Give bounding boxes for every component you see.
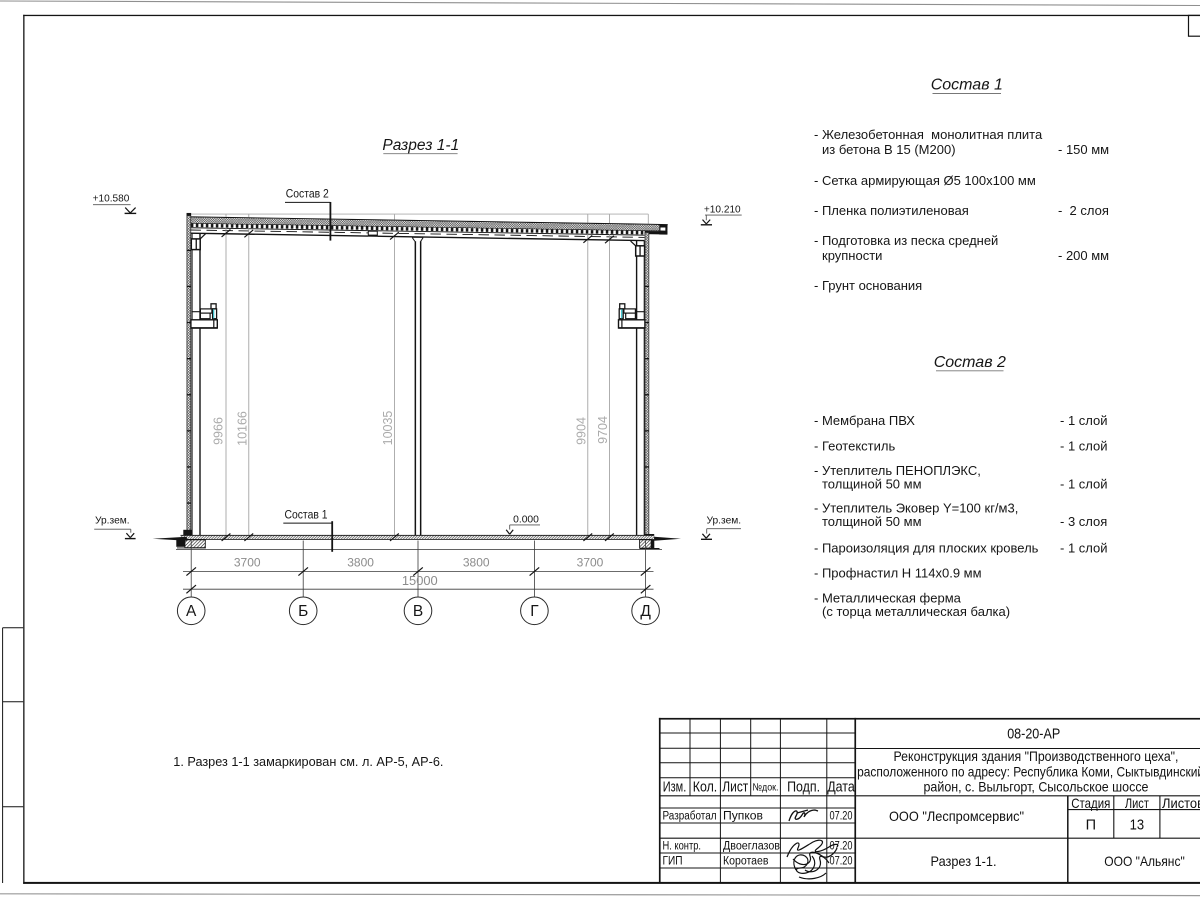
svg-text:ООО "Леспромсервис": ООО "Леспромсервис" <box>889 808 1024 824</box>
svg-text:- Профнастил Н 114х0.9 мм: - Профнастил Н 114х0.9 мм <box>814 566 982 581</box>
svg-text:- 1 слой: - 1 слой <box>1060 413 1108 428</box>
svg-text:08-20-АР: 08-20-АР <box>1007 725 1060 742</box>
svg-text:0.000: 0.000 <box>513 514 539 525</box>
svg-text:- Грунт основания: - Грунт основания <box>814 278 922 293</box>
svg-text:Лист: Лист <box>1125 795 1149 811</box>
svg-text:Подп.: Подп. <box>787 780 820 796</box>
svg-text:Кол.: Кол. <box>693 780 718 796</box>
svg-text:1. Разрез 1-1 замаркирован см.: 1. Разрез 1-1 замаркирован см. л. АР-5, … <box>173 755 443 769</box>
svg-text:Разрез 1-1.: Разрез 1-1. <box>931 853 997 869</box>
svg-text:9704: 9704 <box>596 416 610 444</box>
svg-text:Листов: Листов <box>1162 795 1200 811</box>
svg-text:- 150 мм: - 150 мм <box>1058 142 1109 157</box>
svg-text:- 1 слой: - 1 слой <box>1060 541 1108 556</box>
svg-text:Коротаев: Коротаев <box>723 856 769 868</box>
svg-text:ООО "Альянс": ООО "Альянс" <box>1104 853 1185 869</box>
svg-text:- 1 слой: - 1 слой <box>1060 477 1108 492</box>
svg-text:- Железобетонная монолитная п: - Железобетонная монолитная плита <box>814 127 1043 142</box>
svg-text:Состав 2: Состав 2 <box>934 354 1006 371</box>
svg-text:Д: Д <box>640 603 651 620</box>
svg-text:В: В <box>413 603 423 620</box>
svg-text:- Сетка армирующая Ø5 100х100: - Сетка армирующая Ø5 100х100 мм <box>814 173 1036 188</box>
svg-text:толщиной 50 мм: толщиной 50 мм <box>822 514 922 529</box>
svg-text:- Пароизоляция для плоских кро: - Пароизоляция для плоских кровель <box>814 541 1039 556</box>
svg-text:ГИП: ГИП <box>663 856 683 868</box>
svg-text:- 200 мм: - 200 мм <box>1058 248 1109 263</box>
svg-text:+10.580: +10.580 <box>93 194 130 205</box>
svg-text:Н. контр.: Н. контр. <box>663 841 702 853</box>
svg-text:07.20: 07.20 <box>830 811 853 823</box>
svg-text:Ур.зем.: Ур.зем. <box>707 516 742 527</box>
svg-text:Разрез 1-1: Разрез 1-1 <box>382 137 459 154</box>
svg-text:Состав 1: Состав 1 <box>931 77 1003 94</box>
svg-text:Дата: Дата <box>827 780 855 796</box>
svg-text:- Мембрана ПВХ: - Мембрана ПВХ <box>814 413 915 428</box>
svg-text:3700: 3700 <box>577 556 604 570</box>
svg-text:- 3 слоя: - 3 слоя <box>1060 514 1107 529</box>
svg-text:3700: 3700 <box>234 556 261 570</box>
svg-text:Лист: Лист <box>722 780 748 796</box>
svg-text:- Пленка полиэтиленовая: - Пленка полиэтиленовая <box>814 203 969 218</box>
svg-text:- 1 слой: - 1 слой <box>1060 439 1108 454</box>
svg-text:П: П <box>1086 818 1096 834</box>
svg-text:Б: Б <box>298 603 308 620</box>
svg-text:Реконструкция здания "Производ: Реконструкция здания "Производственного … <box>894 749 1179 764</box>
svg-text:расположенного по адресу: Респ: расположенного по адресу: Республика Ком… <box>857 765 1200 780</box>
svg-text:- Геотекстиль: - Геотекстиль <box>814 439 895 454</box>
svg-text:Состав 1: Состав 1 <box>285 508 328 522</box>
svg-text:Разработал: Разработал <box>663 811 717 823</box>
svg-text:+10.210: +10.210 <box>704 204 741 215</box>
svg-text:крупности: крупности <box>822 248 882 263</box>
svg-text:3800: 3800 <box>347 556 374 570</box>
svg-text:07.20: 07.20 <box>830 856 853 868</box>
svg-text:Г: Г <box>530 603 539 620</box>
svg-text:15000: 15000 <box>402 573 438 588</box>
svg-text:Пупков: Пупков <box>723 811 763 823</box>
svg-text:13: 13 <box>1130 818 1145 834</box>
svg-text:07.20: 07.20 <box>830 841 853 853</box>
svg-text:- 2 слоя: - 2 слоя <box>1058 203 1109 218</box>
svg-text:район, с. Выльгорт, Сысольское: район, с. Выльгорт, Сысольское шоссе <box>924 780 1149 795</box>
svg-text:Изм.: Изм. <box>663 780 687 796</box>
svg-text:10035: 10035 <box>381 411 395 446</box>
svg-text:9904: 9904 <box>574 417 588 445</box>
svg-text:Ур.зем.: Ур.зем. <box>95 516 130 527</box>
svg-text:9966: 9966 <box>212 417 226 445</box>
svg-text:(с торца металлическая балка): (с торца металлическая балка) <box>822 604 1010 619</box>
svg-text:№док.: №док. <box>753 782 779 794</box>
svg-text:10166: 10166 <box>235 411 249 446</box>
svg-text:А: А <box>186 603 197 620</box>
svg-text:3800: 3800 <box>463 556 490 570</box>
svg-text:Состав 2: Состав 2 <box>286 187 329 201</box>
svg-text:Двоеглазов: Двоеглазов <box>723 841 780 853</box>
svg-text:из бетона В 15 (М200): из бетона В 15 (М200) <box>822 142 956 157</box>
svg-text:толщиной 50 мм: толщиной 50 мм <box>822 477 922 492</box>
svg-text:- Подготовка из песка средней: - Подготовка из песка средней <box>814 233 998 248</box>
svg-text:Стадия: Стадия <box>1071 795 1110 811</box>
